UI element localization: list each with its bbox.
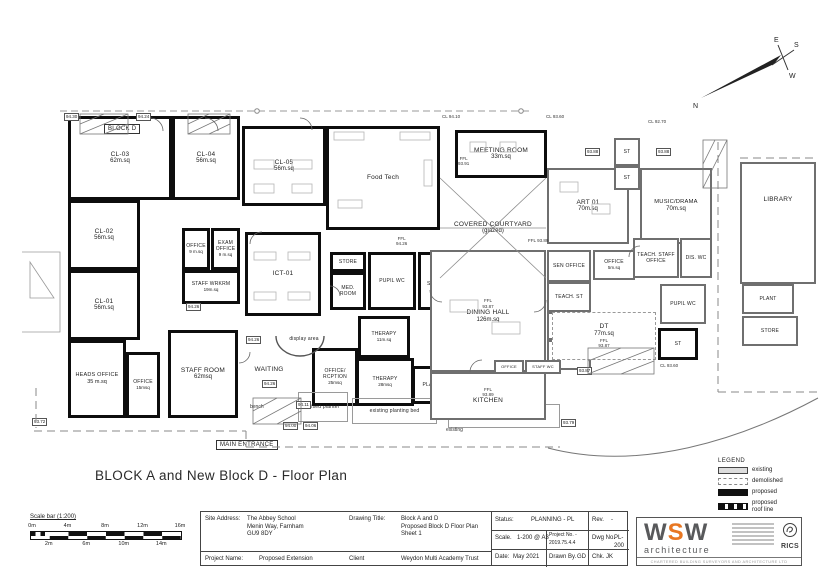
- room-office-5: OFFICE 5m.sq: [593, 250, 635, 280]
- room-music-drama: MUSIC/DRAMA 70m.sq: [640, 168, 712, 244]
- north-arrow-icon: E S W N: [675, 28, 805, 118]
- legend-item-existing: existing: [718, 467, 813, 474]
- legend: LEGEND existing demolished proposed prop…: [718, 458, 813, 518]
- cl-tag: CL 92.70: [648, 119, 666, 124]
- logo-tagline: CHARTERED BUILDING SURVEYORS AND ARCHITE…: [637, 557, 801, 565]
- logo-block: WSW architecture RICS CHARTERED BUILDING…: [636, 517, 802, 566]
- drawn-by-label: Drawn By.: [549, 554, 576, 562]
- project-name: Proposed Extension: [259, 556, 313, 564]
- room-heads-office: HEADS OFFICE 35 m.sq: [68, 340, 126, 418]
- room-pupil-wc: PUPIL WC: [368, 252, 416, 310]
- level-marker: 93.87: [577, 367, 592, 375]
- blockd-label: BLOCK D: [104, 124, 140, 134]
- legend-swatch-existing: [718, 467, 748, 474]
- level-marker: 94.30: [64, 113, 79, 121]
- chk: JK: [606, 554, 613, 562]
- ffl-tag: FFL 93.89: [528, 238, 548, 243]
- level-marker: 93.88: [656, 148, 671, 156]
- level-marker: 94.24: [136, 113, 151, 121]
- chk-label: Chk.: [592, 554, 604, 562]
- legend-title: LEGEND: [718, 458, 813, 464]
- room-dis-wc: DIS. WC: [680, 238, 712, 278]
- level-marker: 94.00: [283, 422, 298, 430]
- site-address-label: Site Address:: [205, 516, 240, 524]
- room-ict01: ICT-01: [245, 232, 321, 316]
- rev: -: [611, 517, 613, 525]
- room-exam-office: EXAM OFFICE 9 m.sq: [211, 228, 240, 270]
- rics-crest-icon: [782, 522, 798, 538]
- room-office-9: OFFICE 9 m.sq: [182, 228, 210, 270]
- level-marker: 94.26: [186, 303, 201, 311]
- scale-bar: Scale bar (1:200) 0m 4m 8m 12m 16m 2m 6m…: [30, 514, 200, 549]
- legend-swatch-demolished: [718, 478, 748, 485]
- scale: 1-200 @ A3: [517, 535, 549, 543]
- client-label: Client: [349, 556, 364, 564]
- wsw-logo: WSW: [644, 521, 708, 545]
- room-office-kitchen: OFFICE: [494, 360, 524, 374]
- room-plant-right: PLANT: [742, 284, 794, 314]
- drawing-title-label: Drawing Title:: [349, 516, 385, 524]
- room-med-room: MED. ROOM: [330, 272, 366, 310]
- date-label: Date:: [495, 554, 509, 562]
- plan-title: BLOCK A and New Block D - Floor Plan: [95, 468, 347, 483]
- compass-e: E: [774, 37, 779, 44]
- room-cl05: CL-05 56m.sq: [242, 126, 326, 206]
- room-teach-st-1: TEACH. ST: [547, 282, 591, 312]
- room-st-b: ST: [614, 166, 640, 190]
- drawn-by: GD: [577, 554, 586, 562]
- client: Weydon Multi Academy Trust: [401, 556, 479, 564]
- cl-tag: CL 94.10: [442, 114, 460, 119]
- main-entrance-label: MAIN ENTRANCE: [216, 440, 278, 450]
- legend-item-demolished: demolished: [718, 478, 813, 485]
- legend-item-roofline: proposed roof line: [718, 500, 813, 514]
- ffl-tag: FFL 94.26: [396, 236, 407, 247]
- legend-item-proposed: proposed: [718, 489, 813, 496]
- room-sen-office: SEN OFFICE: [547, 250, 591, 282]
- legend-swatch-proposed: [718, 489, 748, 496]
- scale-bar-title: Scale bar (1:200): [30, 514, 200, 520]
- status: PLANNING - PL: [531, 517, 574, 525]
- site-address: The Abbey School Menin Way, Farnham GU9 …: [247, 516, 304, 539]
- planting-bed-1: existing planting bed: [352, 398, 437, 424]
- level-marker: 93.72: [32, 418, 47, 426]
- room-kitchen: FFL 93.89 KITCHEN: [430, 372, 546, 420]
- room-cl02: CL-02 56m.sq: [68, 200, 140, 270]
- scale-bar-graphic: [30, 531, 182, 540]
- compass-s: S: [794, 42, 799, 49]
- room-library: LIBRARY: [740, 162, 816, 284]
- room-therapy-11: THERAPY 11m.sq: [358, 316, 410, 358]
- room-st-a: ST: [614, 138, 640, 166]
- project-name-label: Project Name:: [205, 556, 243, 564]
- project-no: 2019.75.4.4: [549, 540, 575, 546]
- level-marker: 94.06: [303, 422, 318, 430]
- existing-label: existing: [446, 427, 463, 433]
- room-dt: DT 77m.sq FFL 93.87: [552, 312, 656, 360]
- level-marker: 93.79: [561, 419, 576, 427]
- room-staff-wc: STAFF WC: [525, 360, 561, 374]
- drawing-title: Block A and D Proposed Block D Floor Pla…: [401, 516, 478, 539]
- dwg-no-label: Dwg No.: [592, 535, 615, 543]
- room-store-right: STORE: [742, 316, 798, 346]
- level-marker: 94.26: [262, 380, 277, 388]
- title-block: Site Address: The Abbey School Menin Way…: [200, 511, 628, 566]
- room-meeting: MEETING ROOM 33m.sq: [455, 130, 547, 178]
- rev-label: Rev.: [592, 517, 604, 525]
- rics-logo: RICS: [779, 522, 801, 550]
- wsw-logo-sub: architecture: [644, 545, 710, 555]
- room-staff-room: STAFF ROOM 62msq: [168, 330, 238, 418]
- level-marker: 93.88: [585, 148, 600, 156]
- date: May 2021: [513, 554, 539, 562]
- legend-swatch-roofline: [718, 503, 748, 510]
- room-cl04: CL-04 56m.sq: [172, 116, 240, 200]
- room-cl01: CL-01 56m.sq: [68, 270, 140, 340]
- cl-tag: CL 93.60: [660, 363, 678, 368]
- project-no-label: Project No. -: [549, 532, 587, 538]
- display-area: display area: [276, 328, 332, 350]
- room-dining-hall: FFL 93.87 DINING HALL 126m.sq: [430, 250, 546, 372]
- drawing-sheet: CL-03 62m.sq CL-04 56m.sq CL-02 56m.sq C…: [0, 0, 820, 580]
- room-staff-wrkrm: STAFF WRKRM 19m.sq: [182, 270, 240, 304]
- room-food-tech: Food Tech: [326, 126, 440, 230]
- logo-address-lines: [732, 523, 774, 547]
- room-office-15: OFFICE 15msq: [126, 352, 160, 418]
- ffl-tag: FFL 93.91: [458, 156, 469, 167]
- room-store: STORE: [330, 252, 366, 272]
- level-marker: 94.26: [246, 336, 261, 344]
- room-pupil-wc-right: PUPIL WC: [660, 284, 706, 324]
- level-marker: 94.11: [296, 401, 311, 409]
- room-teach-staff-office: TEACH. STAFF OFFICE: [633, 238, 679, 278]
- cl-tag: CL 93.60: [546, 114, 564, 119]
- dwg-no: PL-200: [614, 535, 627, 550]
- scale-label: Scale.: [495, 535, 512, 543]
- room-st-dt: ST: [658, 328, 698, 360]
- compass-w: W: [789, 73, 796, 80]
- status-label: Status:: [495, 517, 514, 525]
- bench-label: bench: [250, 404, 264, 410]
- compass-n: N: [693, 103, 698, 110]
